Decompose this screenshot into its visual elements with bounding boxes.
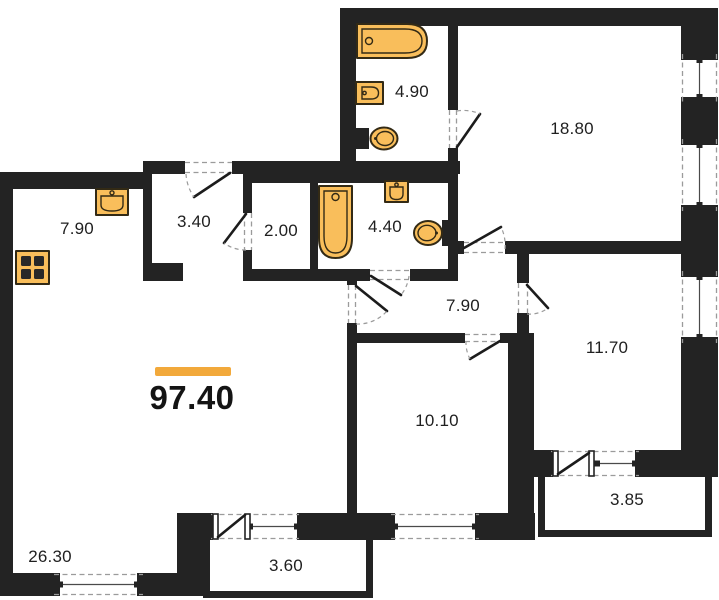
entry-door [185,163,232,198]
window-right-a [683,54,717,103]
door-living-to-corridor [349,285,388,324]
window-balcony-1 [211,515,300,539]
bathtub-icon [357,24,427,58]
total-area-label: 97.40 [149,379,234,417]
door-ensuite-bathroom [450,110,481,148]
toilet-icon [356,128,398,150]
kitchen-sink-icon [96,189,128,215]
room-area-label-bedroom-3: 10.10 [415,411,459,431]
floor-plan: 7.90 3.40 2.00 4.40 4.90 18.80 7.90 11.7… [0,0,719,600]
room-area-label-entry-hall: 3.40 [177,212,211,232]
room-area-label-ensuite-bathroom: 4.90 [395,82,429,102]
sink-icon [356,82,383,104]
window-living-room [54,575,143,595]
window-bedroom-3 [391,515,479,539]
room-area-label-bedroom-master: 18.80 [550,119,594,139]
door-bathroom [370,271,410,296]
room-area-label-living-room: 26.30 [28,547,72,567]
room-area-label-corridor: 7.90 [446,296,480,316]
room-area-label-kitchen: 7.90 [60,219,94,239]
toilet-icon [414,220,454,246]
stove-icon [16,251,49,284]
balcony-door-1 [213,514,250,539]
window-right-c [683,271,717,343]
bathtub-icon [319,186,352,258]
floor-plan-drawing [0,0,719,600]
door-storage [224,213,252,250]
loggia-door [553,451,594,476]
room-area-label-storage: 2.00 [264,221,298,241]
door-bedroom-master [464,227,505,253]
window-loggia [551,452,639,476]
door-bedroom-2 [519,283,549,314]
total-area-accent-bar [155,367,231,376]
room-area-label-bedroom-2: 11.70 [586,338,628,358]
room-area-label-balcony: 3.60 [269,556,303,576]
room-area-label-bathroom: 4.40 [368,217,402,237]
door-bedroom-3 [465,335,500,360]
room-area-label-loggia: 3.85 [610,490,644,510]
window-right-b [683,139,717,211]
